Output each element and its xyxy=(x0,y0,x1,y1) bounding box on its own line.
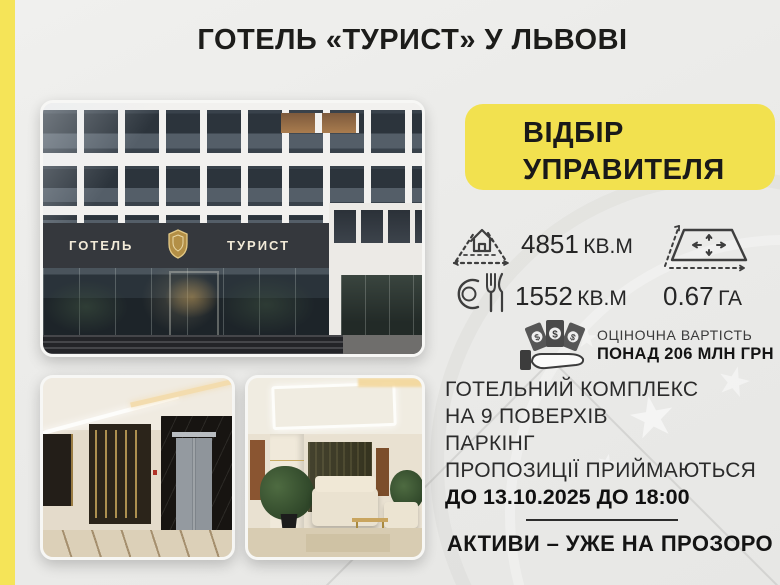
svg-text:$: $ xyxy=(552,330,558,341)
right-wing-glass xyxy=(341,275,422,343)
hotel-crest-icon xyxy=(167,229,189,259)
page-title: ГОТЕЛЬ «ТУРИСТ» У ЛЬВОВІ xyxy=(50,24,775,57)
decor-panel-gold-stripes xyxy=(95,430,145,518)
elevator-door xyxy=(176,438,212,530)
badge-line2: УПРАВИТЕЛЯ xyxy=(523,152,775,189)
decor-panel xyxy=(89,424,151,524)
armchair xyxy=(384,502,418,528)
entrance-light xyxy=(165,276,219,318)
land-area-stat: 0.67 ГА xyxy=(663,281,742,312)
ceiling-warm-cove xyxy=(358,378,422,387)
ceiling-led-frame xyxy=(271,382,396,430)
restaurant-area-unit: КВ.М xyxy=(577,287,627,310)
restaurant-area-stat: 1552 КВ.М xyxy=(515,281,627,312)
valuation-label: ОЦІНОЧНА ВАРТІСТЬ xyxy=(597,327,752,343)
selection-badge: ВІДБІР УПРАВИТЕЛЯ xyxy=(465,104,775,190)
badge-line1: ВІДБІР xyxy=(523,115,775,152)
money-in-hand-icon: $ $ $ xyxy=(516,316,594,373)
lobby-photo xyxy=(40,375,235,560)
building-photo: ГОТЕЛЬ ТУРИСТ xyxy=(40,100,425,357)
poster: ★ ★ ★ ★ ГОТЕЛЬ «ТУРИСТ» У ЛЬВОВІ ГОТЕЛЬ … xyxy=(0,0,780,585)
land-plot-icon xyxy=(660,220,752,272)
elevator-lintel xyxy=(172,432,216,437)
lounge-ceiling xyxy=(248,378,422,434)
left-accent-strip xyxy=(0,0,15,585)
sofa-back xyxy=(315,476,375,492)
building-right-wing xyxy=(329,203,422,354)
corridor-door xyxy=(376,448,389,496)
detail-line: ГОТЕЛЬНИЙ КОМПЛЕКС xyxy=(445,376,780,403)
detail-line: ПРОПОЗИЦІЇ ПРИЙМАЮТЬСЯ xyxy=(445,457,780,484)
lounge-floor xyxy=(248,528,422,557)
window-sunset-reflection xyxy=(281,113,359,133)
land-area-value: 0.67 xyxy=(663,281,714,311)
property-details: ГОТЕЛЬНИЙ КОМПЛЕКС НА 9 ПОВЕРХІВ ПАРКІНГ… xyxy=(445,376,780,511)
hotel-area-stat: 4851 КВ.М xyxy=(521,229,633,260)
lobby-wardrobe xyxy=(43,434,73,506)
house-area-icon xyxy=(450,217,512,267)
footer-slogan: АКТИВИ – УЖЕ НА ПРОЗОРО xyxy=(445,531,775,557)
valuation-value: ПОНАД 206 МЛН ГРН xyxy=(597,345,774,364)
ceiling-warm-led-strip xyxy=(130,375,235,408)
hotel-sign-band: ГОТЕЛЬ ТУРИСТ xyxy=(43,223,329,268)
floor-inlay xyxy=(43,530,232,557)
entrance-glass xyxy=(43,268,329,335)
pavement xyxy=(343,335,422,354)
deadline-line: ДО 13.10.2025 ДО 18:00 xyxy=(445,484,780,511)
hotel-area-value: 4851 xyxy=(521,229,579,259)
detail-line: ПАРКІНГ xyxy=(445,430,780,457)
fire-alarm xyxy=(153,470,157,475)
lobby-floor xyxy=(43,530,232,557)
footer-divider xyxy=(526,519,678,521)
right-wing-windows xyxy=(334,210,422,243)
restaurant-icon xyxy=(452,267,506,317)
rug xyxy=(306,534,390,552)
detail-line: НА 9 ПОВЕРХІВ xyxy=(445,403,780,430)
entrance-steps xyxy=(43,335,343,354)
potted-plant xyxy=(260,466,314,520)
sky-highlight xyxy=(40,100,193,223)
hotel-area-unit: КВ.М xyxy=(583,235,633,258)
land-area-unit: ГА xyxy=(718,287,742,310)
hotel-sign-right: ТУРИСТ xyxy=(227,238,290,253)
lounge-photo xyxy=(245,375,425,560)
restaurant-area-value: 1552 xyxy=(515,281,573,311)
hotel-sign-left: ГОТЕЛЬ xyxy=(69,238,133,253)
